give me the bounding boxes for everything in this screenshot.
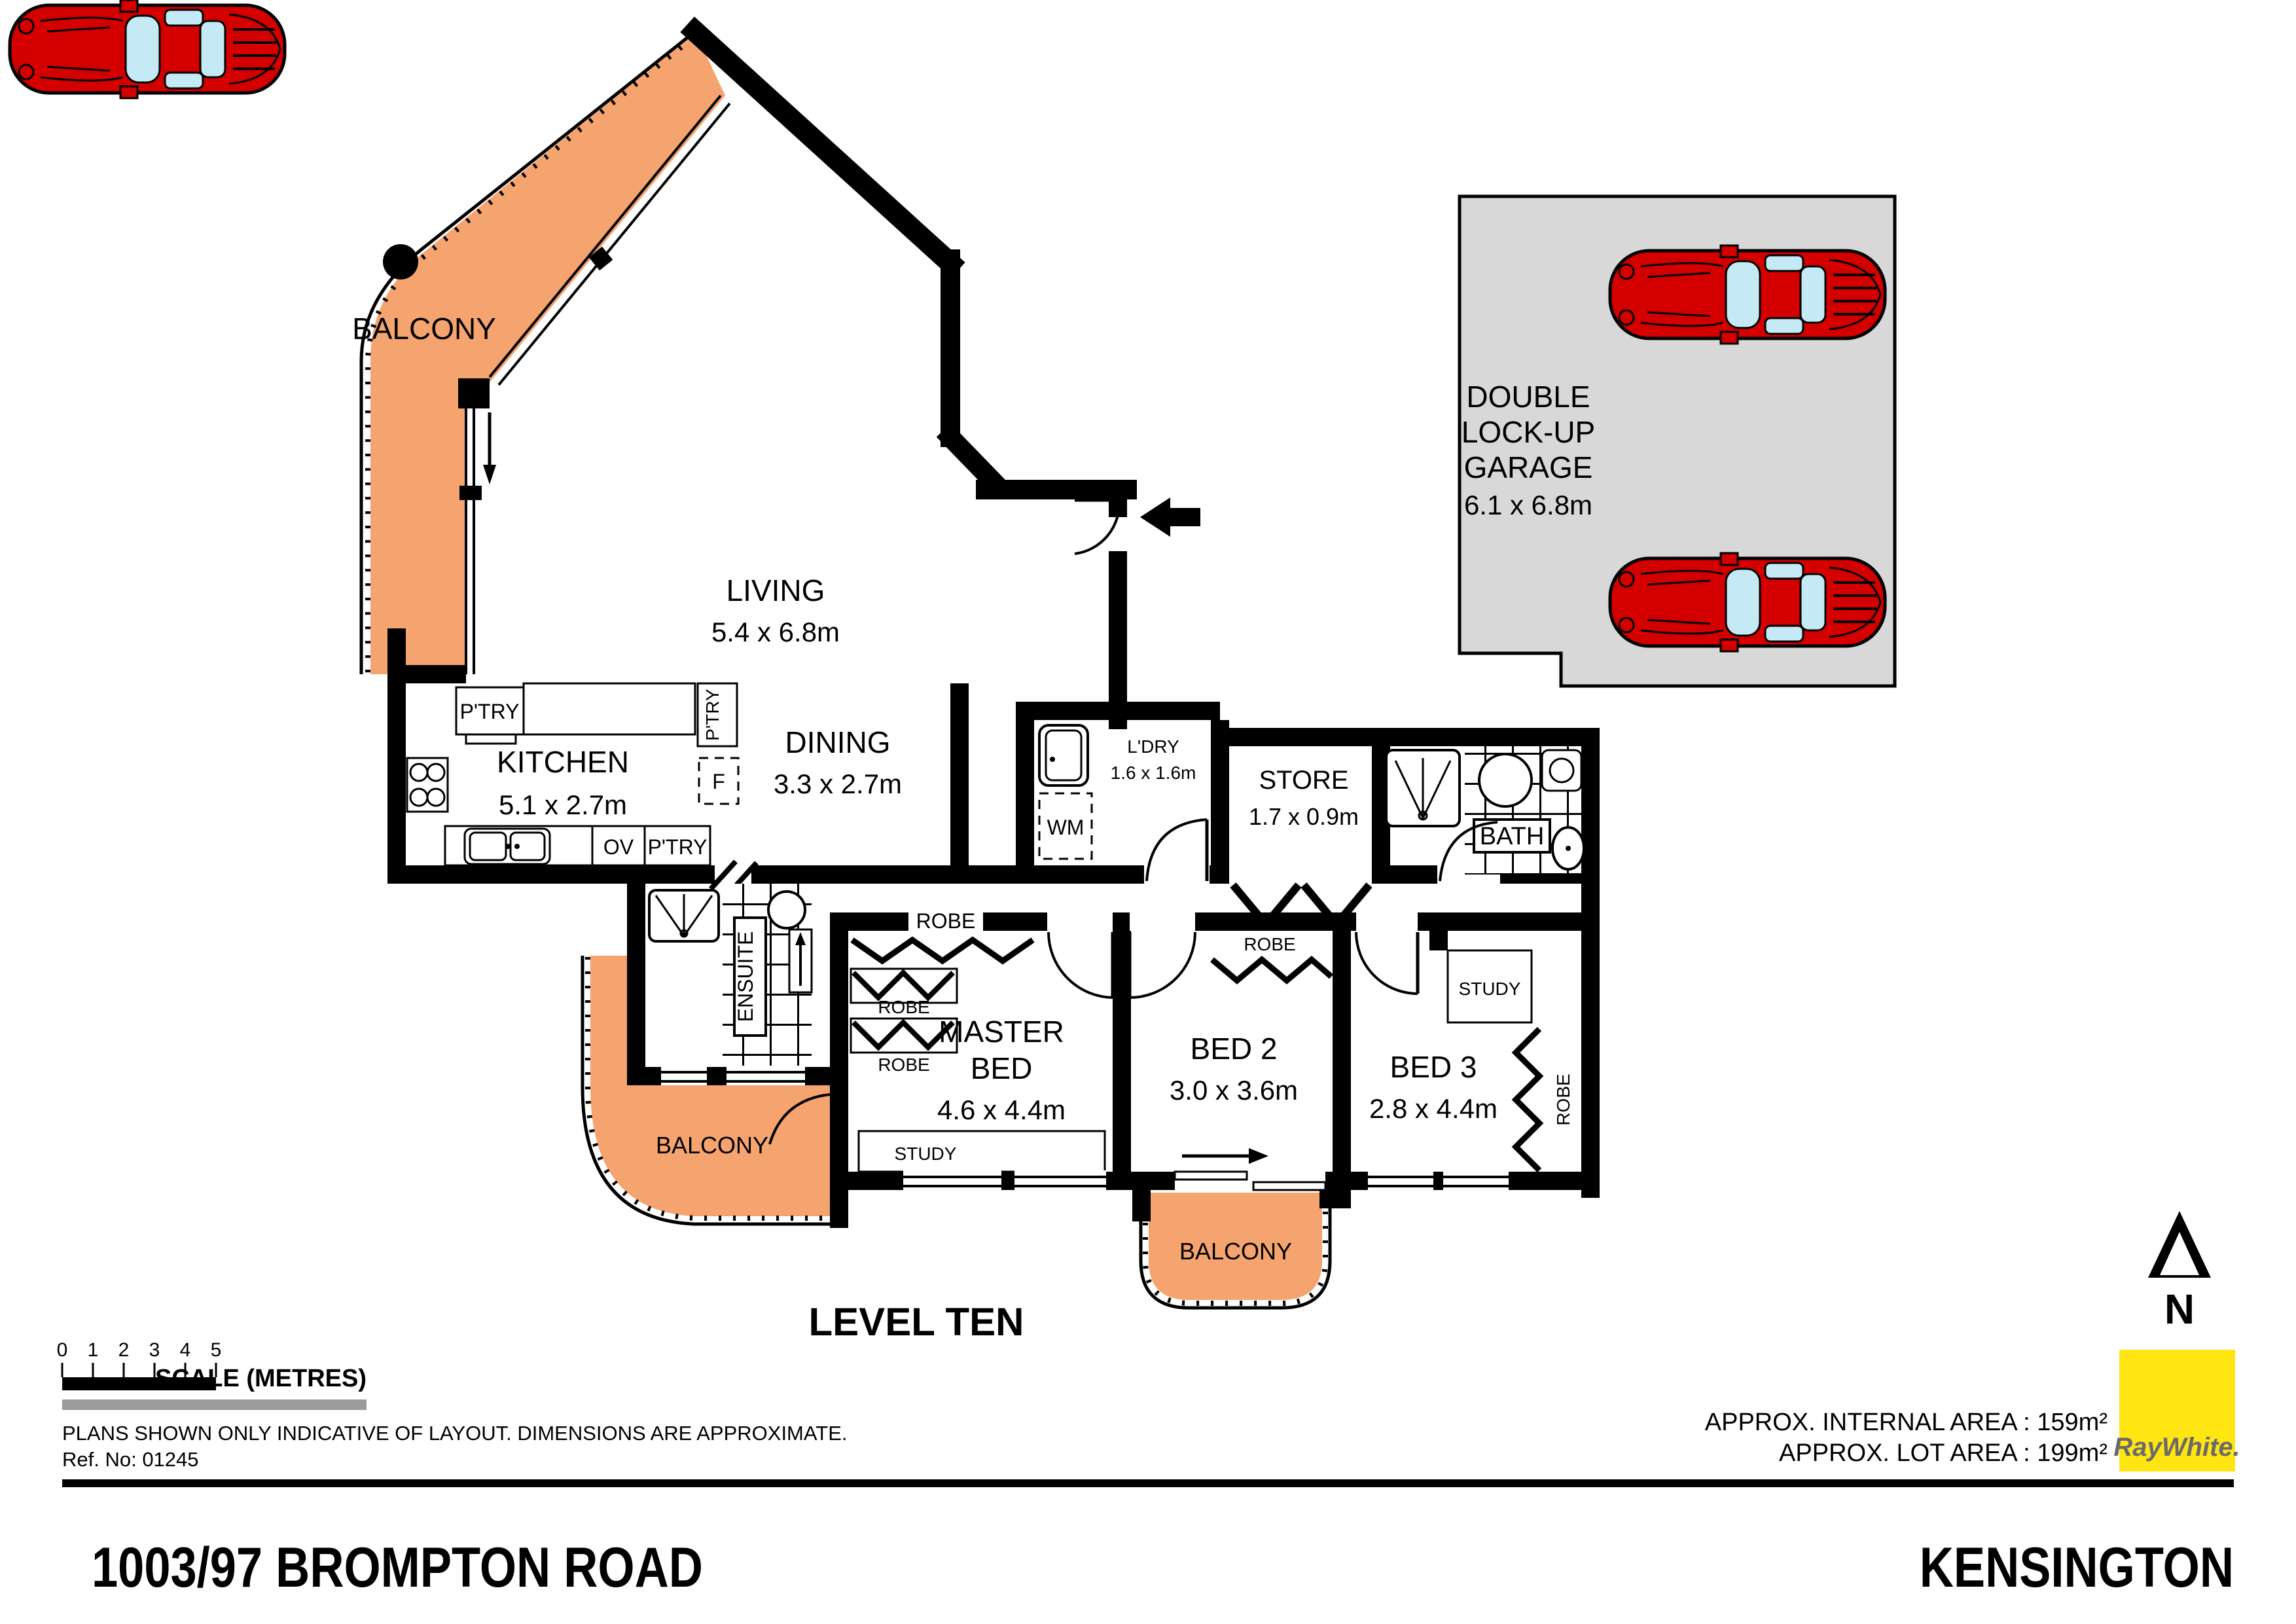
store-dims: 1.7 x 0.9m bbox=[1249, 803, 1359, 830]
garage-dims: 6.1 x 6.8m bbox=[1464, 490, 1592, 520]
master-study-label: STUDY bbox=[895, 1144, 957, 1164]
ptry-island-label: P'TRY bbox=[460, 700, 520, 723]
floorplan-page: { "plan": { "balcony": "BALCONY", "livin… bbox=[0, 0, 2296, 1624]
ref-number: Ref. No: 01245 bbox=[62, 1448, 199, 1471]
scale-tick-2: 2 bbox=[118, 1339, 130, 1361]
scale-label: SCALE (METRES) bbox=[155, 1365, 367, 1392]
scale-tick-0: 0 bbox=[57, 1339, 68, 1361]
master-dims: 4.6 x 4.4m bbox=[937, 1094, 1066, 1125]
car-1 bbox=[1610, 245, 1885, 344]
internal-area-text: APPROX. INTERNAL AREA : 159m² bbox=[1705, 1409, 2108, 1436]
room-bed2: ROBE BED 2 3.0 x 3.6m bbox=[1130, 931, 1351, 1191]
disclaimer-text: PLANS SHOWN ONLY INDICATIVE OF LAYOUT. D… bbox=[62, 1422, 847, 1445]
master-robe-top-rail bbox=[852, 940, 1033, 961]
scale-tick-4: 4 bbox=[180, 1339, 191, 1361]
north-label: N bbox=[2164, 1286, 2195, 1333]
garage-label-3: GARAGE bbox=[1464, 450, 1593, 484]
living-dims: 5.4 x 6.8m bbox=[711, 617, 840, 647]
room-kitchen: P'TRY KITCHEN 5.1 x 2.7m OV P'TRY P'TRY … bbox=[387, 628, 738, 884]
scale-grey-bar bbox=[62, 1399, 367, 1410]
door-direction-arrow bbox=[483, 465, 496, 484]
ensuite-toilet bbox=[768, 892, 805, 928]
scale-tick-1: 1 bbox=[88, 1339, 99, 1361]
ldry-dims: 1.6 x 1.6m bbox=[1111, 763, 1196, 783]
entry-arrow-icon bbox=[1140, 497, 1200, 537]
footer: PLANS SHOWN ONLY INDICATIVE OF LAYOUT. D… bbox=[62, 1409, 2234, 1598]
window-sill bbox=[459, 486, 482, 500]
address-title: 1003/97 BROMPTON ROAD bbox=[92, 1536, 703, 1598]
suburb-title: KENSINGTON bbox=[1920, 1536, 2234, 1598]
garage-label-1: DOUBLE bbox=[1466, 380, 1590, 414]
room-bed3: STUDY ROBE BED 3 2.8 x 4.4m bbox=[1351, 931, 1600, 1191]
garage-label-2: LOCK-UP bbox=[1462, 415, 1595, 449]
oven-label: OV bbox=[603, 835, 634, 859]
master-robe-top-label: ROBE bbox=[916, 909, 976, 933]
balcony-top-label: BALCONY bbox=[352, 312, 496, 346]
master-label-1: MASTER bbox=[939, 1015, 1064, 1049]
scale-bar: 0 1 2 3 4 5 SCALE (METRES) bbox=[57, 1339, 367, 1410]
room-master: ROBE ROBE ROBE MASTER BED 4.6 x 4.4m STU… bbox=[830, 909, 1131, 1228]
car-2 bbox=[1610, 553, 1885, 651]
balcony-top-floor bbox=[370, 31, 725, 674]
bed3-dims: 2.8 x 4.4m bbox=[1369, 1093, 1498, 1124]
bed2-slider-arrow bbox=[1249, 1148, 1268, 1164]
footer-divider bbox=[62, 1479, 2234, 1487]
logo-raywhite: RayWhite. bbox=[2113, 1350, 2240, 1471]
store-label: STORE bbox=[1259, 766, 1348, 795]
scale-tick-3: 3 bbox=[149, 1339, 160, 1361]
fridge-label: F bbox=[712, 770, 725, 793]
north-arrow: N bbox=[2148, 1211, 2211, 1333]
living-label: LIVING bbox=[726, 573, 825, 607]
scale-tick-5: 5 bbox=[211, 1339, 222, 1361]
bed3-robe-rail bbox=[1516, 1029, 1539, 1170]
bed2-label: BED 2 bbox=[1191, 1032, 1278, 1066]
master-label-2: BED bbox=[971, 1051, 1033, 1085]
bath-basin bbox=[1479, 754, 1532, 806]
bed2-robe-rail bbox=[1212, 960, 1331, 981]
bed2-door-arc bbox=[1130, 932, 1195, 998]
bed3-study-label: STUDY bbox=[1459, 979, 1521, 999]
ptry-bench-label: P'TRY bbox=[648, 835, 708, 859]
bed3-label: BED 3 bbox=[1390, 1050, 1477, 1084]
car-icon bbox=[10, 0, 285, 98]
balcony-bottom: BALCONY bbox=[1132, 1190, 1351, 1308]
raywhite-wordmark: RayWhite. bbox=[2113, 1433, 2240, 1462]
master-robe-1-label: ROBE bbox=[878, 997, 929, 1017]
bed2-robe-label: ROBE bbox=[1244, 934, 1295, 954]
balcony-top: BALCONY bbox=[352, 31, 725, 674]
bed2-dims: 3.0 x 3.6m bbox=[1170, 1075, 1298, 1106]
balcony-left-label: BALCONY bbox=[656, 1132, 768, 1159]
dining-label: DINING bbox=[785, 725, 891, 759]
kitchen-dims: 5.1 x 2.7m bbox=[499, 789, 627, 820]
balcony-bottom-label: BALCONY bbox=[1179, 1238, 1292, 1265]
ptry-tall-label: P'TRY bbox=[702, 689, 723, 741]
ldry-label: L'DRY bbox=[1127, 736, 1179, 757]
lot-area-text: APPROX. LOT AREA : 199m² bbox=[1779, 1439, 2108, 1467]
floorplan-canvas: DOUBLE LOCK-UP GARAGE 6.1 x 6.8m BALCONY bbox=[0, 0, 2296, 1624]
bed3-robe-label: ROBE bbox=[1553, 1074, 1573, 1125]
room-store: STORE 1.7 x 0.9m bbox=[1220, 728, 1390, 924]
wall-band-upper bbox=[387, 861, 1600, 890]
dining-dims: 3.3 x 2.7m bbox=[774, 768, 902, 799]
bath-label: BATH bbox=[1480, 823, 1545, 850]
ensuite-label: ENSUITE bbox=[734, 931, 757, 1022]
balcony-column-dot bbox=[383, 244, 418, 280]
glass-corner-post bbox=[458, 378, 490, 408]
master-robe-2-label: ROBE bbox=[878, 1055, 929, 1075]
master-door-arc bbox=[1049, 932, 1113, 998]
kitchen-label: KITCHEN bbox=[497, 745, 629, 779]
room-ensuite: ENSUITE bbox=[627, 884, 830, 1087]
wm-label: WM bbox=[1047, 816, 1085, 839]
bed3-door-arc bbox=[1356, 932, 1418, 994]
level-label: LEVEL TEN bbox=[809, 1300, 1024, 1344]
room-dining: DINING 3.3 x 2.7m bbox=[774, 683, 969, 875]
